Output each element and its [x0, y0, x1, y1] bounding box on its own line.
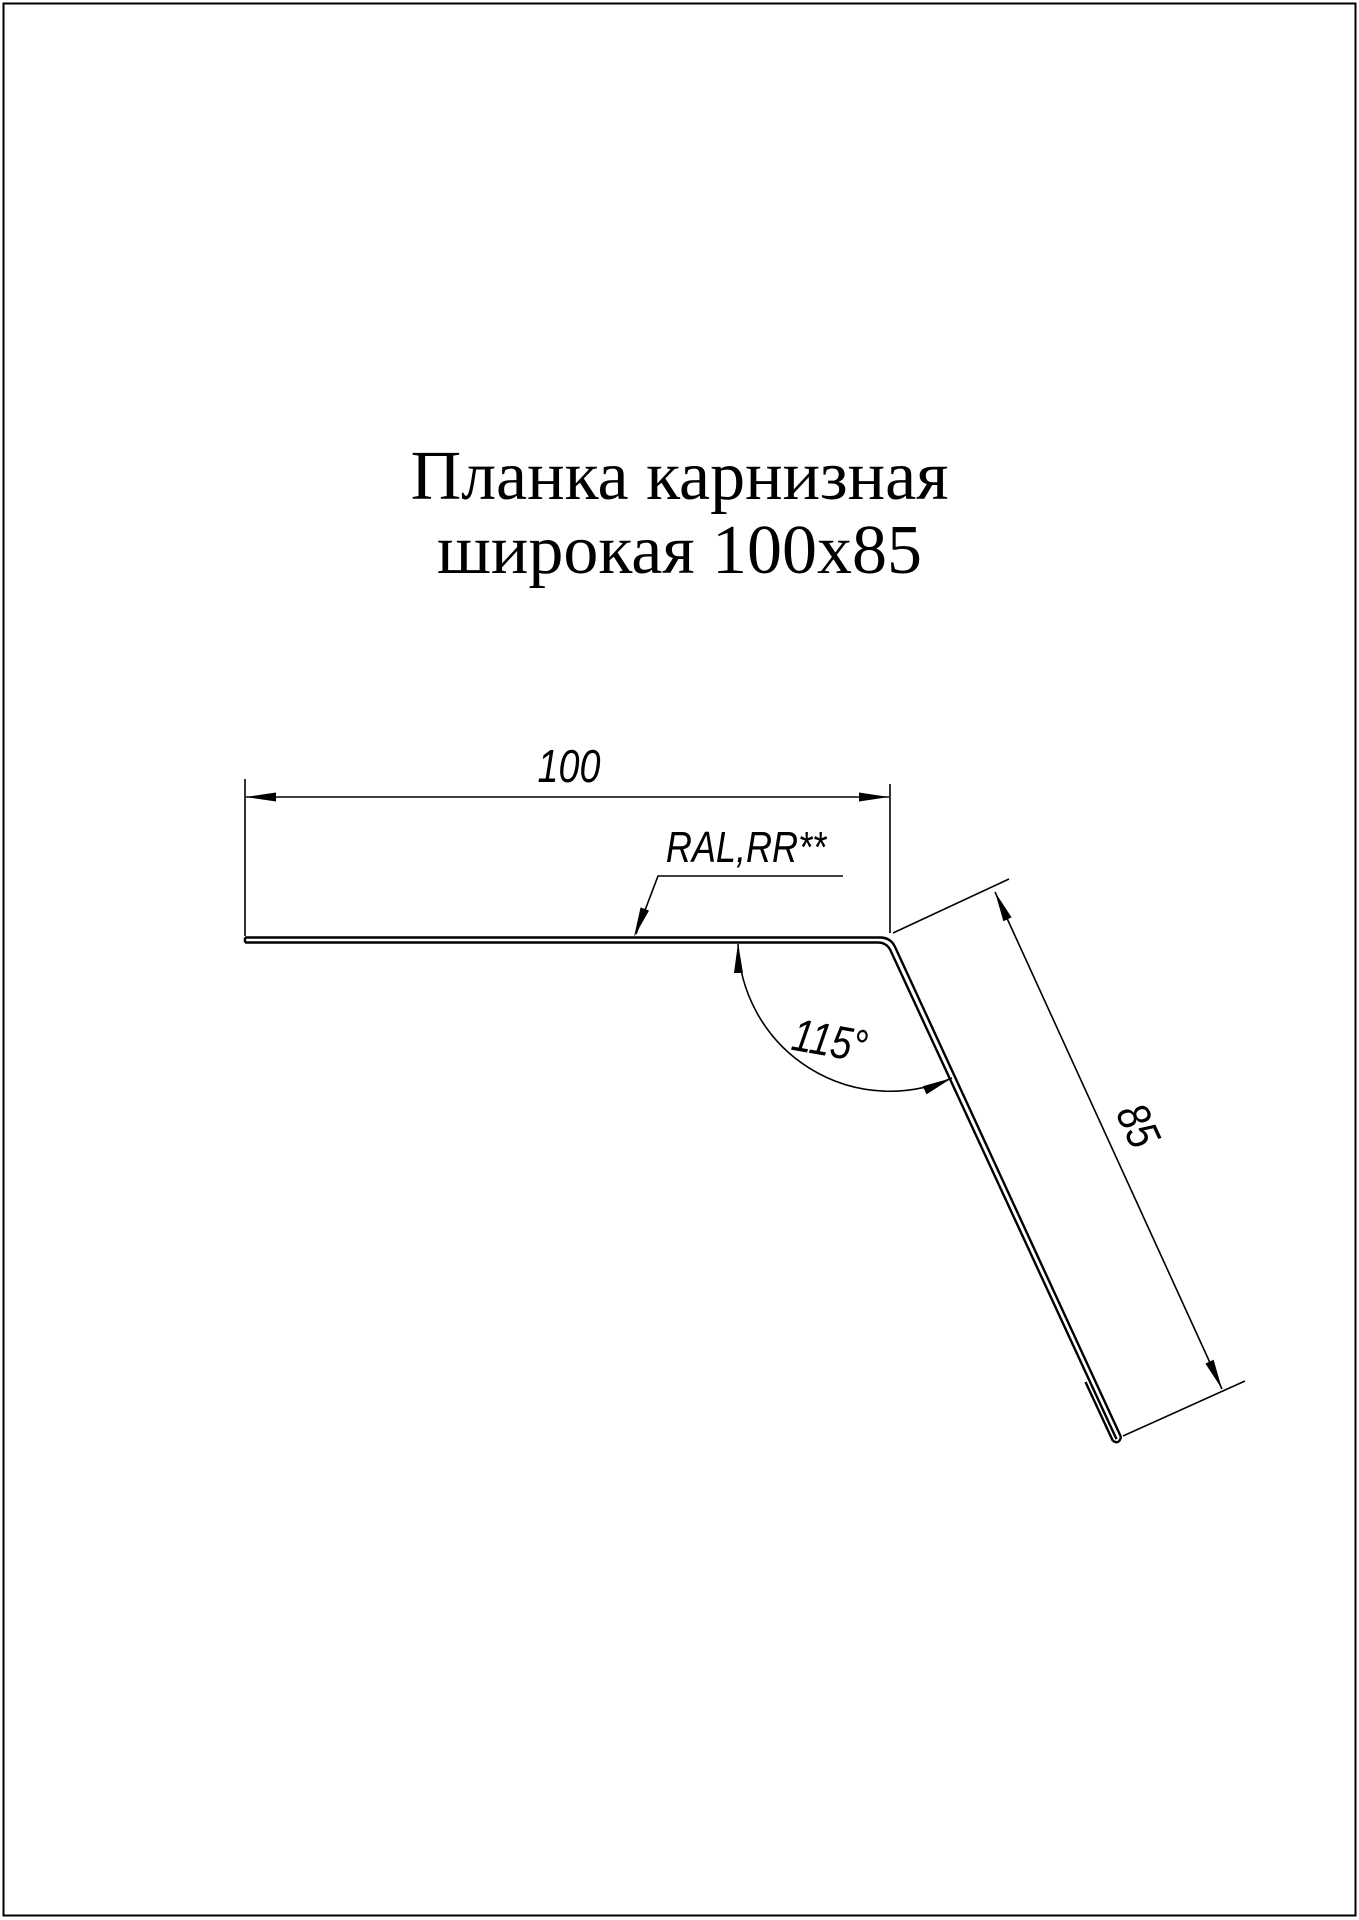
plate-outer-surface [245, 938, 1121, 1438]
dim-slope-extension-bottom [1123, 1381, 1245, 1436]
dim-width-label: 100 [538, 740, 601, 791]
coating-leader-line [636, 876, 843, 934]
profile-drawing: 100 85 115° RAL,RR** [0, 0, 1359, 1920]
coating-label: RAL,RR** [666, 823, 828, 872]
plate-inner-surface [245, 943, 1117, 1440]
coating-leader-arrow [634, 907, 649, 937]
angle-arrow-bottom [923, 1078, 952, 1094]
page-border [4, 4, 1356, 1916]
angle-arrow-top [734, 943, 743, 973]
dim-slope-extension-top [893, 879, 1009, 933]
dim-slope-arrow-top [995, 892, 1012, 921]
dim-width-arrow-right [859, 793, 889, 802]
drawing-sheet: Планка карнизная широкая 100x85 100 85 [0, 0, 1359, 1920]
dim-slope-line [995, 892, 1222, 1389]
dim-width-arrow-left [246, 793, 276, 802]
dim-slope-arrow-bottom [1205, 1360, 1222, 1389]
dim-slope-label: 85 [1106, 1096, 1170, 1156]
